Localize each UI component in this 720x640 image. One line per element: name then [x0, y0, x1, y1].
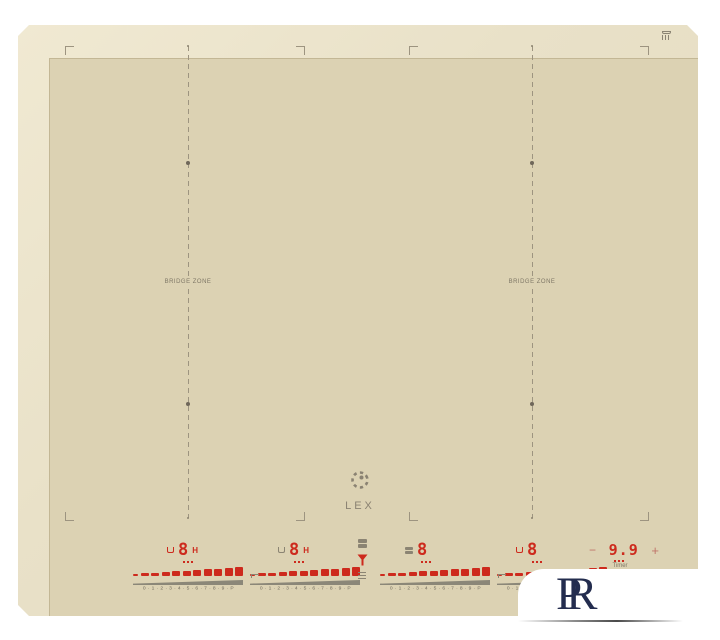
zone-corner-mark — [65, 512, 74, 521]
zone-center-dot — [530, 161, 534, 165]
display-dots — [532, 561, 544, 563]
slider-segments[interactable] — [133, 564, 243, 576]
slider-segments[interactable] — [250, 564, 360, 576]
pot-icon — [278, 547, 285, 553]
pot-icon — [516, 547, 523, 553]
zone3-power-display[interactable]: 8 — [405, 539, 431, 561]
display-dots — [614, 560, 626, 562]
zone3-power-digit: 8 — [417, 542, 427, 559]
zone2-power-slider[interactable]: 0 · 1 · 2 · 3 · 4 · 5 · 6 · 7 · 8 · 9 · … — [250, 564, 360, 592]
zone-center-dot — [186, 161, 190, 165]
retailer-watermark: PR — [518, 569, 720, 640]
brand-name: LEX — [336, 500, 384, 512]
slider-track[interactable] — [380, 580, 490, 585]
line-end-dot — [531, 517, 533, 519]
line-end-dot — [531, 45, 533, 47]
slider-track[interactable] — [250, 580, 360, 585]
zone-corner-mark — [65, 46, 74, 55]
bridge-icon — [405, 547, 413, 554]
zone1-power-digit: 8 — [178, 542, 188, 559]
zone2-power-digit: 8 — [289, 542, 299, 559]
power-scale-labels: 0 · 1 · 2 · 3 · 4 · 5 · 6 · 7 · 8 · 9 · … — [260, 586, 350, 591]
line-end-dot — [187, 45, 189, 47]
bridge-function-button[interactable] — [356, 539, 368, 548]
zone2-heat-indicator: H — [303, 546, 309, 555]
boost-function-button[interactable] — [356, 554, 368, 566]
watermark-monogram: PR — [556, 571, 598, 618]
power-scale-labels: 0 · 1 · 2 · 3 · 4 · 5 · 6 · 7 · 8 · 9 · … — [390, 586, 480, 591]
pan-detection-icon — [662, 31, 673, 42]
bridge-zone-label-left: BRIDGE ZONE — [162, 279, 215, 285]
display-dots — [294, 561, 306, 563]
timer-value: 9.9 — [609, 541, 639, 559]
zone-corner-mark — [296, 46, 305, 55]
zone-corner-mark — [296, 512, 305, 521]
zone4-power-display[interactable]: 8 — [516, 539, 541, 561]
zone-corner-mark — [640, 512, 649, 521]
zone1-power-slider[interactable]: 0 · 1 · 2 · 3 · 4 · 5 · 6 · 7 · 8 · 9 · … — [133, 564, 243, 592]
timer-plus-button[interactable]: + — [651, 543, 659, 558]
watermark-underline — [518, 620, 683, 622]
display-dots — [183, 561, 195, 563]
line-end-dot — [187, 517, 189, 519]
boost-icon — [357, 554, 368, 566]
lex-ring-icon — [348, 468, 372, 492]
zone1-heat-indicator: H — [192, 546, 198, 555]
zone1-power-display[interactable]: 8 H — [167, 539, 198, 561]
brand-logo: LEX — [336, 468, 384, 512]
power-scale-labels: 0 · 1 · 2 · 3 · 4 · 5 · 6 · 7 · 8 · 9 · … — [143, 586, 233, 591]
product-photo: BRIDGE ZONE BRIDGE ZONE LEX 8 H 8 H 8 8 — [0, 0, 720, 640]
slider-zero-mark — [498, 574, 506, 578]
slider-segments[interactable] — [380, 564, 490, 576]
zone-center-dot — [186, 402, 190, 406]
zone-corner-mark — [640, 46, 649, 55]
slider-zero-mark — [251, 574, 259, 578]
zone3-power-slider[interactable]: 0 · 1 · 2 · 3 · 4 · 5 · 6 · 7 · 8 · 9 · … — [380, 564, 490, 592]
zone4-power-digit: 8 — [527, 542, 537, 559]
slider-track[interactable] — [133, 580, 243, 585]
zone-corner-mark — [409, 46, 418, 55]
cooktop-body — [18, 25, 698, 616]
timer-minus-button[interactable]: − — [589, 543, 596, 557]
zone-corner-mark — [409, 512, 418, 521]
bridge-zone-label-right: BRIDGE ZONE — [506, 279, 559, 285]
zone2-power-display[interactable]: 8 H — [278, 539, 309, 561]
display-dots — [421, 561, 433, 563]
pot-icon — [167, 547, 174, 553]
watermark-letter-r: R — [566, 568, 597, 620]
cooktop-glass-surface — [49, 58, 705, 625]
zone-center-dot — [530, 402, 534, 406]
lock-function-button[interactable] — [356, 572, 368, 579]
timer-control: − 9.9 + — [589, 541, 659, 559]
